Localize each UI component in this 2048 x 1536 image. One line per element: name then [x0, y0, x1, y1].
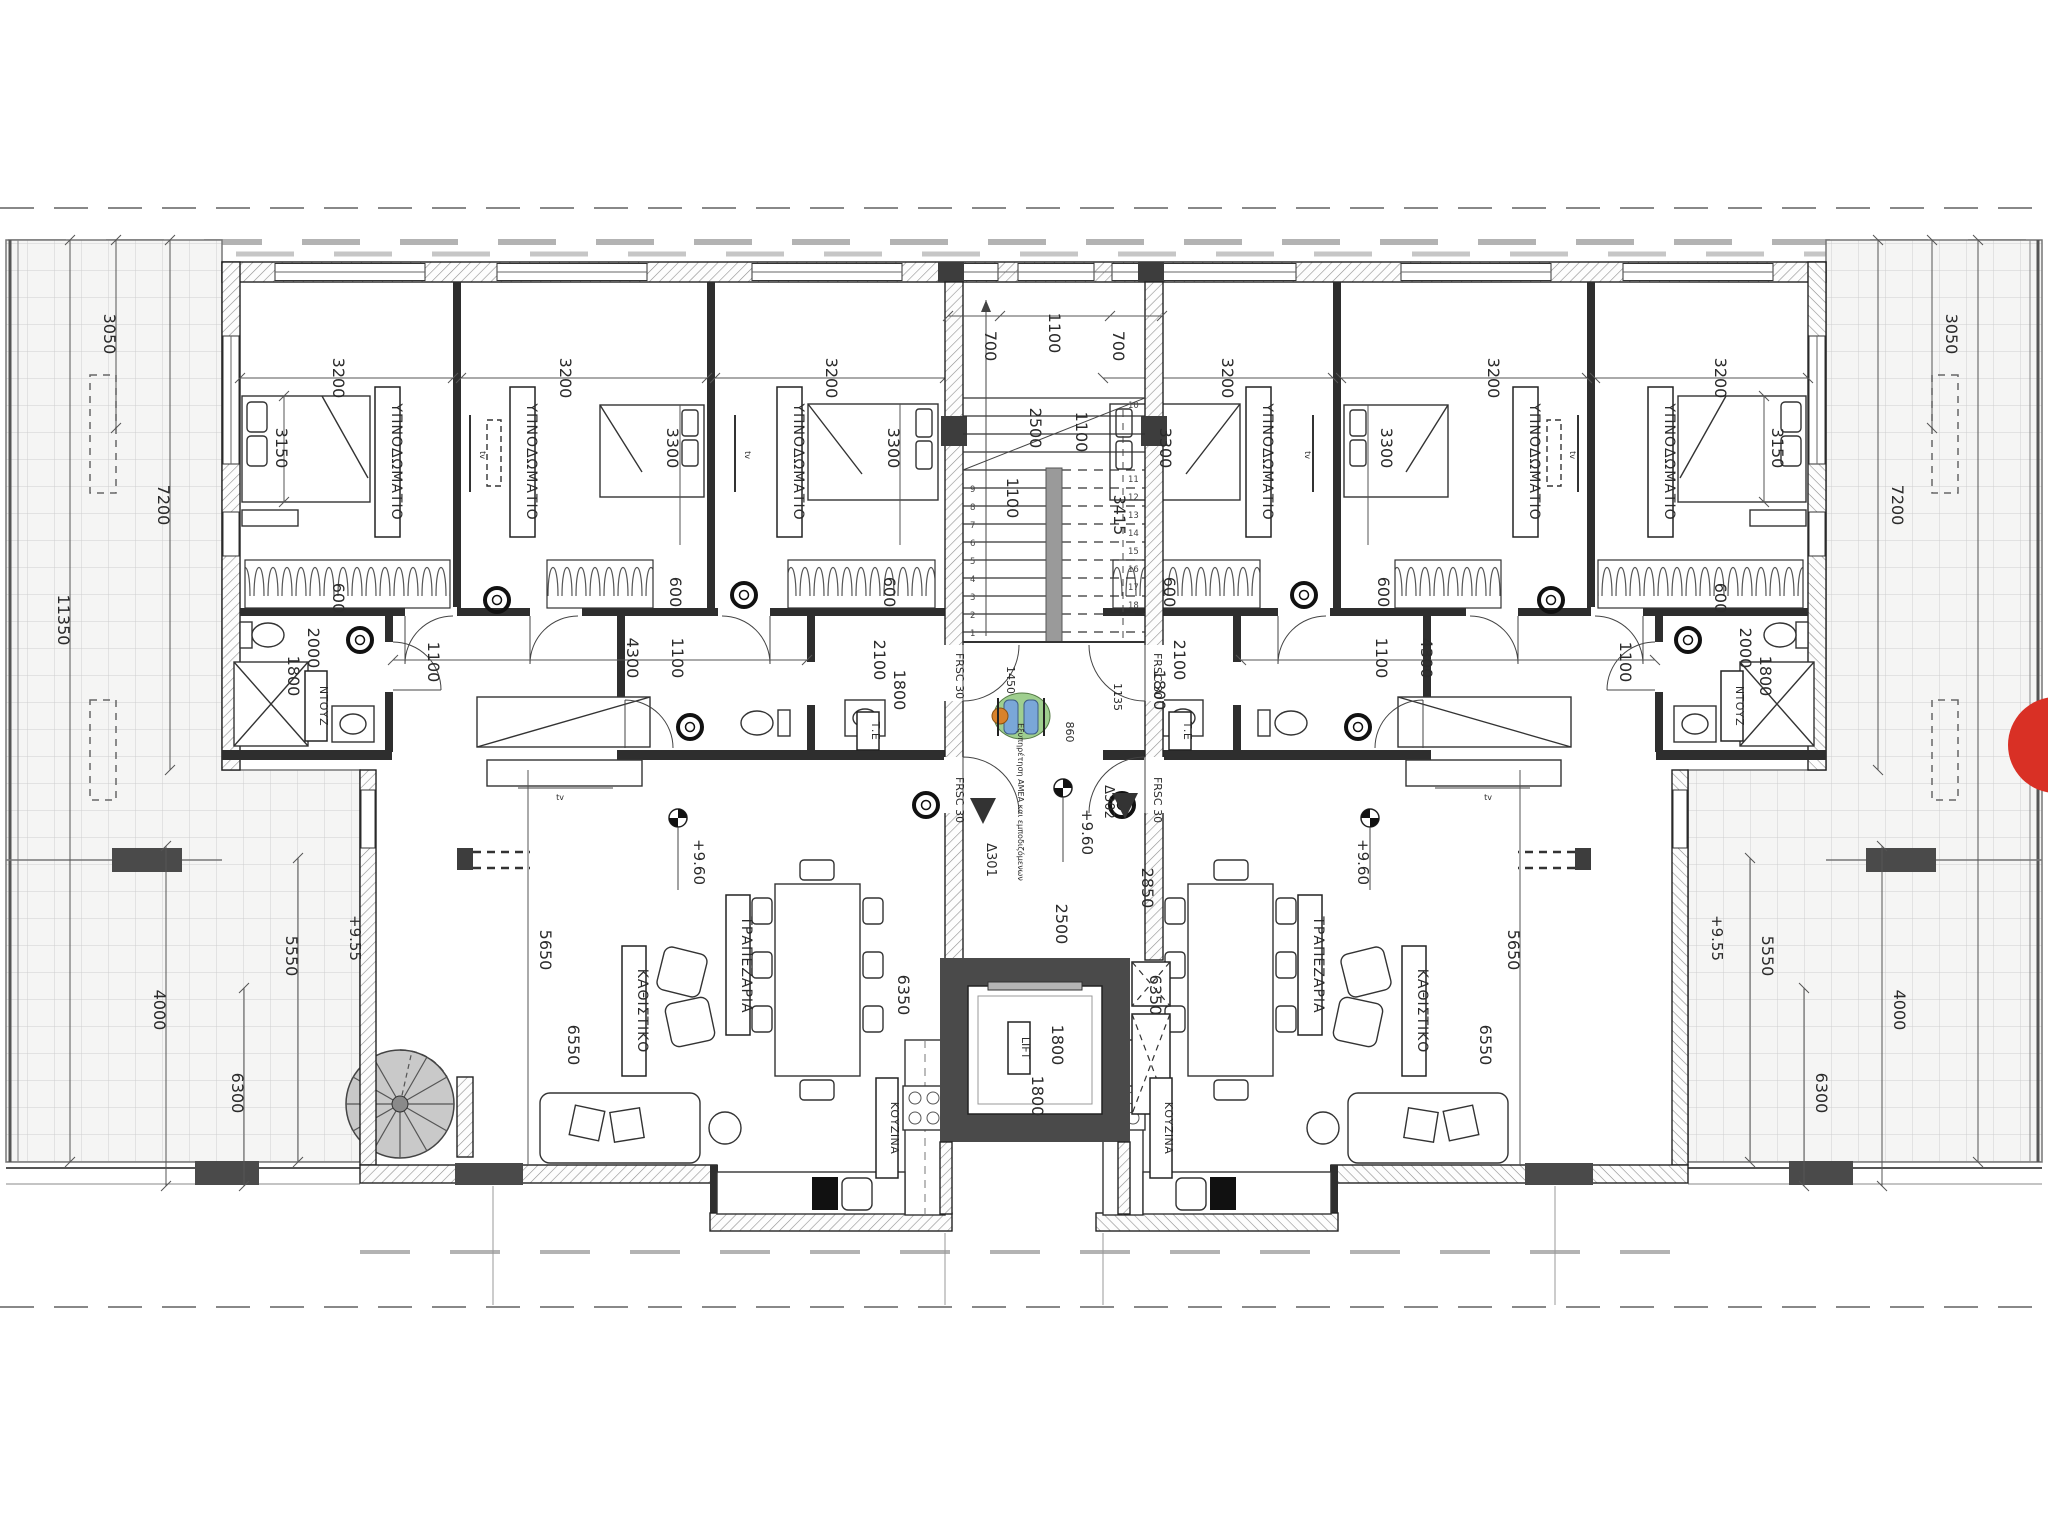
dim-6550: 6550 [564, 1025, 583, 1066]
dim-5550: 5550 [282, 936, 301, 977]
dim-6550: 6550 [1476, 1025, 1495, 1066]
toilet [741, 710, 790, 736]
dim-6300: 6300 [1812, 1073, 1831, 1114]
room-label-bedroom: ΥΠΝΟΔΩΜΑΤΙΟ [1661, 402, 1677, 520]
door-label-d301: Δ301 [983, 843, 998, 877]
basin [332, 706, 374, 742]
svg-text:9: 9 [970, 485, 975, 495]
tv-label: tv [1484, 793, 1492, 802]
dim-3300: 3300 [1156, 428, 1175, 469]
dim-4300: 4300 [623, 638, 642, 679]
dim-5650: 5650 [1504, 930, 1523, 971]
room-label-bedroom: ΥΠΝΟΔΩΜΑΤΙΟ [388, 402, 404, 520]
svg-text:12: 12 [1128, 493, 1139, 503]
svg-text:11: 11 [1128, 475, 1139, 485]
svg-text:14: 14 [1128, 529, 1139, 539]
dim-3200: 3200 [329, 358, 348, 399]
room-label-bedroom: ΥΠΝΟΔΩΜΑΤΙΟ [1259, 402, 1275, 520]
room-label-shower: ΝΤΟΥΖ [1733, 686, 1746, 726]
dim-1800: 1800 [1048, 1025, 1067, 1066]
room-label-te: Τ.Ε [1181, 721, 1194, 741]
lift-label: LIFT [1019, 1037, 1032, 1060]
dim-2000: 2000 [1736, 628, 1755, 669]
dim-1800: 1800 [1756, 656, 1775, 697]
dim-700: 700 [1109, 331, 1128, 362]
svg-text:10: 10 [1128, 401, 1139, 411]
level-terrace: +9.55 [1708, 915, 1726, 961]
note-amea: Εξυπηρέτηση ΑΜΕΑ και εμποδιζόμενων [1016, 723, 1026, 881]
dim-1135: 1135 [1111, 683, 1124, 711]
room-label-bedroom: ΥΠΝΟΔΩΜΑΤΙΟ [1526, 402, 1542, 520]
svg-text:2: 2 [970, 611, 975, 621]
tv-label: tv [743, 451, 752, 459]
dim-4300: 4300 [1417, 638, 1436, 679]
tv-label: tv [1303, 451, 1312, 459]
svg-text:6: 6 [970, 539, 975, 549]
dim-2100: 2100 [1170, 640, 1189, 681]
sofa [540, 1093, 700, 1163]
dim-600: 600 [880, 577, 899, 608]
room-label-living: ΚΑΘΙΣΤΙΚΟ [634, 969, 650, 1054]
dim-7200: 7200 [1888, 485, 1907, 526]
dim-6350: 6350 [894, 975, 913, 1016]
dim-600: 600 [1711, 583, 1730, 614]
dim-11350: 11350 [54, 595, 73, 646]
svg-text:5: 5 [970, 557, 975, 567]
room-label-dining: ΤΡΑΠΕΖΑΡΙΑ [738, 915, 754, 1013]
room-label-shower: ΝΤΟΥΖ [317, 686, 330, 726]
dim-7200: 7200 [154, 485, 173, 526]
dim-600: 600 [1374, 577, 1393, 608]
fire-door-label: FRSC 30 [1151, 777, 1164, 823]
tv-label: tv [1568, 451, 1577, 459]
dim-1100: 1100 [1045, 313, 1064, 354]
dim-3200: 3200 [1484, 358, 1503, 399]
level-terrace: +9.55 [346, 915, 364, 961]
dim-1100: 1100 [1372, 638, 1391, 679]
dim-5650: 5650 [536, 930, 555, 971]
dim-1800: 1800 [1150, 670, 1169, 711]
dim-2850: 2850 [1138, 868, 1157, 909]
dim-3150: 3150 [272, 428, 291, 469]
svg-text:7: 7 [970, 521, 975, 531]
dim-3050: 3050 [100, 314, 119, 355]
sideboard [487, 760, 642, 786]
dim-600: 600 [1160, 577, 1179, 608]
dim-1450: 1450 [1004, 666, 1017, 694]
room-label-kitchen: ΚΟΥΖΙΝΑ [888, 1102, 901, 1155]
dim-1100: 1100 [424, 642, 443, 683]
dining-table [752, 860, 883, 1100]
hall-cabinet [477, 697, 650, 747]
north-wall [222, 262, 1826, 282]
dim-1800: 1800 [284, 656, 303, 697]
svg-text:3: 3 [970, 593, 975, 603]
dim-4000: 4000 [1890, 990, 1909, 1031]
level-marker [1054, 779, 1072, 862]
dim-6350: 6350 [1146, 975, 1165, 1016]
svg-text:1: 1 [970, 629, 975, 639]
door-label-d302: Δ302 [1101, 785, 1116, 819]
dim-3300: 3300 [1377, 428, 1396, 469]
armchairs [655, 945, 716, 1048]
south-wall [360, 1165, 717, 1183]
dim-700: 700 [981, 331, 1000, 362]
door-mark-d301 [970, 798, 996, 824]
dim-3150: 3150 [1768, 428, 1787, 469]
dim-1100: 1100 [1072, 412, 1091, 453]
svg-text:17: 17 [1128, 583, 1139, 593]
dim-3200: 3200 [556, 358, 575, 399]
dim-3200: 3200 [822, 358, 841, 399]
bed [600, 405, 704, 497]
level-floor: +9.60 [1354, 839, 1372, 885]
tv-label: tv [556, 793, 564, 802]
svg-text:4: 4 [970, 575, 975, 585]
room-label-bedroom: ΥΠΝΟΔΩΜΑΤΙΟ [523, 402, 539, 520]
dim-1800: 1800 [890, 670, 909, 711]
tv-dashed [487, 420, 501, 486]
room-label-dining: ΤΡΑΠΕΖΑΡΙΑ [1310, 915, 1326, 1013]
dim-3300: 3300 [884, 428, 903, 469]
fire-door-label: FRSC 30 [953, 777, 966, 823]
dim-5550: 5550 [1758, 936, 1777, 977]
dim-2500: 2500 [1052, 904, 1071, 945]
room-label-living: ΚΑΘΙΣΤΙΚΟ [1414, 969, 1430, 1054]
toilet [240, 622, 284, 648]
level-floor: +9.60 [1078, 809, 1096, 855]
level-floor: +9.60 [690, 839, 708, 885]
dim-3050: 3050 [1942, 314, 1961, 355]
dim-860: 860 [1063, 722, 1076, 743]
dim-3200: 3200 [1218, 358, 1237, 399]
tv-label: tv [478, 451, 487, 459]
fire-door-label: FRSC 30 [953, 653, 966, 699]
dim-6300: 6300 [228, 1073, 247, 1114]
room-label-te: Τ.Ε [869, 721, 882, 741]
bed [808, 404, 938, 500]
svg-text:8: 8 [970, 503, 975, 513]
dim-600: 600 [329, 583, 348, 614]
dim-3415: 3415 [1110, 495, 1129, 536]
room-label-bedroom: ΥΠΝΟΔΩΜΑΤΙΟ [790, 402, 806, 520]
side-table [709, 1112, 741, 1144]
dim-2000: 2000 [304, 628, 323, 669]
stove [903, 1086, 945, 1130]
dim-2500: 2500 [1026, 408, 1045, 449]
dim-2100: 2100 [870, 640, 889, 681]
room-label-kitchen: ΚΟΥΖΙΝΑ [1162, 1102, 1175, 1155]
windows [275, 264, 1773, 281]
floor-plan-page: 3050 7200 11350 5550 4000 6300 +9.55 305… [0, 0, 2048, 1536]
dim-4000: 4000 [150, 990, 169, 1031]
dim-600: 600 [666, 577, 685, 608]
floor-plan-drawing: 3050 7200 11350 5550 4000 6300 +9.55 305… [0, 0, 2048, 1536]
level-marker [669, 809, 687, 890]
bed [242, 396, 370, 526]
dim-1100: 1100 [1616, 642, 1635, 683]
dim-1100: 1100 [1003, 478, 1022, 519]
svg-text:13: 13 [1128, 511, 1139, 521]
dim-3200: 3200 [1711, 358, 1730, 399]
svg-text:18: 18 [1128, 601, 1139, 611]
svg-text:16: 16 [1128, 565, 1139, 575]
dim-1100: 1100 [668, 638, 687, 679]
dim-1800: 1800 [1028, 1076, 1047, 1117]
svg-text:15: 15 [1128, 547, 1139, 557]
dim-3300: 3300 [663, 428, 682, 469]
